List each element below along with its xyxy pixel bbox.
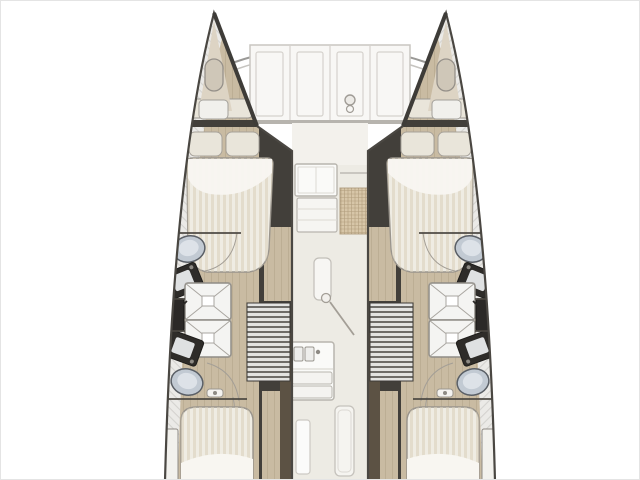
saloon-front-floor	[292, 123, 368, 165]
boat-plan: Catamaran interior layout deck plan	[1, 1, 640, 480]
galley-floor-mat	[340, 188, 371, 234]
foredeck	[232, 45, 428, 124]
deck-plan-canvas: Catamaran interior layout deck plan	[0, 0, 640, 480]
aft-door	[296, 420, 310, 474]
galley-forward-unit	[295, 164, 337, 232]
saloon	[290, 123, 371, 480]
faucet-icon	[316, 350, 320, 354]
sink-basin-right	[305, 347, 314, 361]
galley-aft-sink-unit	[290, 342, 334, 400]
aft-locker-panel	[335, 406, 354, 476]
sink-basin-left	[294, 347, 303, 361]
